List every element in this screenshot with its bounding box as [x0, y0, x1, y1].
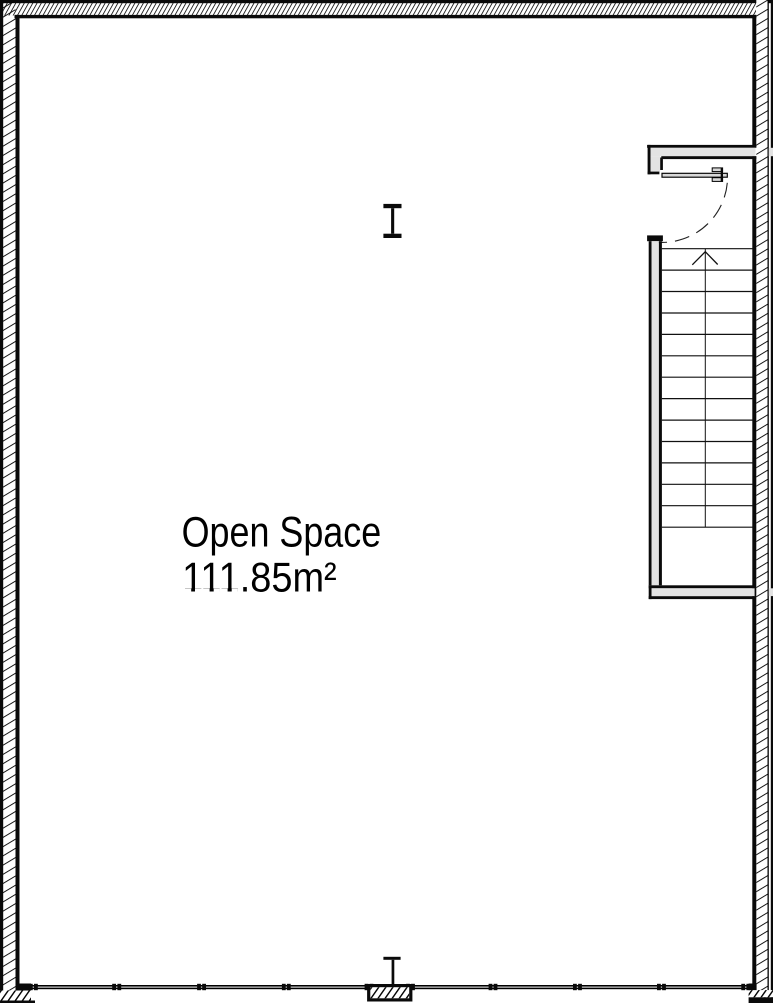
svg-text:111.85m²: 111.85m² [182, 555, 337, 601]
svg-text:Open Space: Open Space [182, 509, 382, 557]
